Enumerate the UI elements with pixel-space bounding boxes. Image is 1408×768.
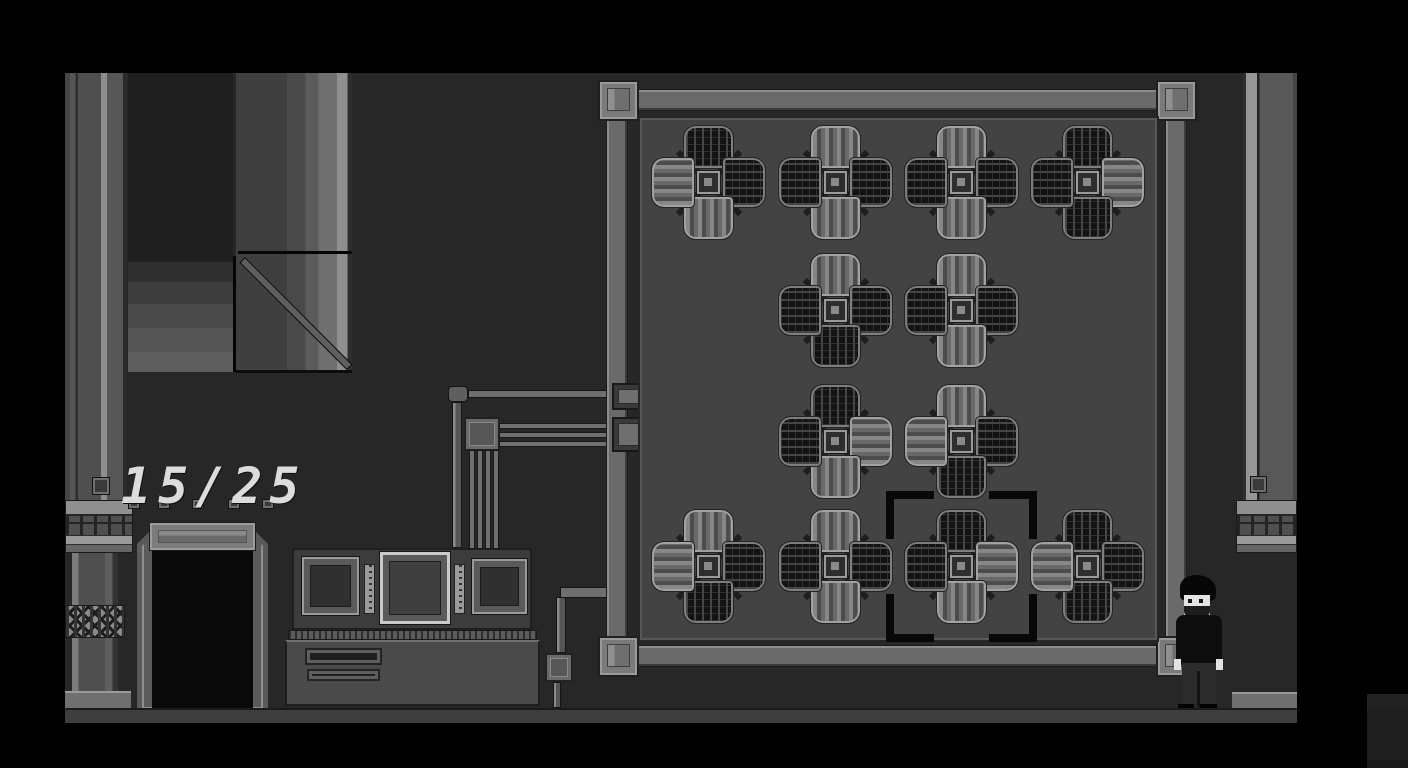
- character-hand: [1174, 659, 1181, 670]
- tile-hub-icon: [824, 299, 847, 322]
- panel-frame-right: [1165, 119, 1187, 638]
- wall-opening: [125, 73, 233, 262]
- puzzle-tile-r1c3[interactable]: [905, 126, 1018, 239]
- tile-arm-left: [905, 542, 947, 591]
- tile-arm-left: [779, 158, 821, 207]
- tile-hub-icon: [950, 171, 973, 194]
- tile-hub-icon: [950, 430, 973, 453]
- door-lintel-plaque: [150, 523, 255, 550]
- panel-corner-bolt-icon: [600, 638, 637, 675]
- wall-column: [236, 73, 352, 373]
- tile-arm-left: [905, 286, 947, 335]
- drop-pipe: [553, 682, 561, 708]
- pillar-bolt-icon: [93, 478, 109, 494]
- cable: [500, 442, 612, 446]
- tile-arm-left: [652, 158, 694, 207]
- tile-arm-left: [905, 158, 947, 207]
- character-shirt: [1176, 615, 1222, 665]
- tile-arm-left: [779, 417, 821, 466]
- tile-hub-icon: [824, 555, 847, 578]
- cornice-pattern: [1237, 516, 1296, 535]
- vent-strip-icon: [454, 564, 465, 614]
- vertical-pipe: [556, 597, 566, 653]
- cornice-band: [1237, 535, 1296, 544]
- cable: [470, 451, 474, 548]
- console-lip: [288, 630, 537, 640]
- left-monitor-screen: [310, 565, 351, 607]
- puzzle-tile-r3c3[interactable]: [905, 385, 1018, 498]
- horizontal-pipe: [468, 390, 612, 398]
- tile-arm-left: [652, 542, 694, 591]
- puzzle-tile-r3c2[interactable]: [779, 385, 892, 498]
- cable: [478, 451, 482, 548]
- right-pillar: [1243, 73, 1297, 500]
- elbow-pipe: [560, 587, 610, 598]
- puzzle-counter: 15/25: [121, 457, 307, 515]
- cable: [494, 451, 498, 548]
- left-pillar: [65, 73, 128, 505]
- panel-frame-top: [637, 89, 1158, 111]
- tile-arm-left: [779, 542, 821, 591]
- player-character: [1175, 575, 1225, 713]
- puzzle-tile-r4c3[interactable]: [905, 510, 1018, 623]
- center-monitor: [380, 552, 450, 624]
- tile-hub-icon: [824, 430, 847, 453]
- tile-hub-icon: [1076, 171, 1099, 194]
- puzzle-tile-r1c4[interactable]: [1031, 126, 1144, 239]
- console-monitor-deck: [292, 548, 532, 630]
- puzzle-tile-r1c1[interactable]: [652, 126, 765, 239]
- tile-arm-left: [779, 286, 821, 335]
- tile-hub-icon: [697, 171, 720, 194]
- right-cornice: [1236, 500, 1297, 553]
- tile-arm-left: [905, 417, 947, 466]
- doorway-opening[interactable]: [152, 548, 253, 709]
- tile-hub-icon: [1076, 555, 1099, 578]
- vertical-pipe: [452, 402, 462, 548]
- left-monitor: [302, 557, 359, 615]
- character-leg-gap: [1197, 671, 1200, 707]
- tile-arm-left: [1031, 542, 1073, 591]
- puzzle-tile-r2c2[interactable]: [779, 254, 892, 367]
- game-viewport: 15/25: [65, 73, 1297, 723]
- vent-strip-icon: [364, 564, 375, 614]
- puzzle-tile-r1c2[interactable]: [779, 126, 892, 239]
- offscreen-block: [1367, 694, 1408, 768]
- paneled-wall: [125, 262, 233, 372]
- center-monitor-screen: [389, 561, 441, 615]
- right-monitor-screen: [480, 567, 519, 606]
- puzzle-tile-r2c3[interactable]: [905, 254, 1018, 367]
- panel-frame-left: [606, 119, 628, 638]
- pipe-cap: [448, 386, 468, 402]
- console-desk[interactable]: [285, 640, 540, 706]
- tile-arm-left: [1031, 158, 1073, 207]
- cable: [500, 433, 612, 437]
- corner-line: [233, 256, 236, 372]
- cornice-band: [1237, 501, 1296, 516]
- character-hair-fringe: [1184, 589, 1210, 595]
- tile-hub-icon: [950, 555, 973, 578]
- panel-corner-bolt-icon: [600, 82, 637, 119]
- puzzle-tile-r4c1[interactable]: [652, 510, 765, 623]
- cable: [500, 424, 612, 428]
- tile-hub-icon: [697, 555, 720, 578]
- puzzle-grid: [640, 118, 1157, 640]
- wall-box: [545, 653, 573, 682]
- character-eye: [1188, 599, 1192, 603]
- cornice-band: [66, 544, 132, 553]
- junction-box: [464, 417, 500, 451]
- tile-hub-icon: [950, 299, 973, 322]
- zigzag-bracket: [65, 605, 125, 638]
- puzzle-tile-r4c2[interactable]: [779, 510, 892, 623]
- ceiling-line: [238, 251, 352, 254]
- panel-frame-bottom: [637, 645, 1158, 667]
- desk-slot: [307, 669, 380, 681]
- character-hand: [1216, 659, 1223, 670]
- desk-slot: [305, 648, 382, 665]
- cornice-band: [66, 535, 132, 544]
- puzzle-tile-r4c4[interactable]: [1031, 510, 1144, 623]
- cable: [486, 451, 490, 548]
- left-pillar-base: [65, 691, 131, 708]
- pillar-bolt-icon: [1251, 477, 1266, 492]
- floor: [65, 708, 1297, 723]
- game-screen: 15/25: [0, 0, 1408, 768]
- cornice-pattern: [66, 516, 132, 535]
- panel-corner-bolt-icon: [1158, 82, 1195, 119]
- right-pillar-base: [1232, 692, 1297, 709]
- right-monitor: [472, 559, 527, 614]
- tile-hub-icon: [824, 171, 847, 194]
- character-eye: [1199, 599, 1203, 603]
- cornice-band: [1237, 544, 1296, 553]
